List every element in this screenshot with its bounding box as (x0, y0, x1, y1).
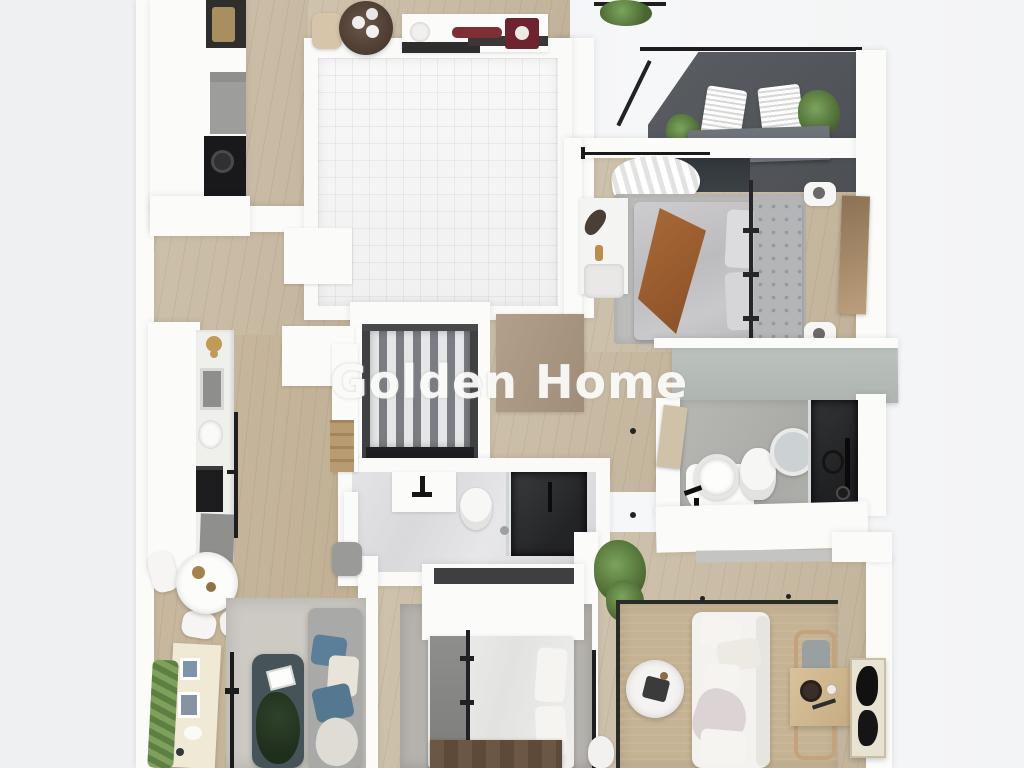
decor-sphere-2 (366, 8, 378, 20)
living-sofa-pillow-3 (703, 663, 741, 691)
shower1-fixture (548, 482, 552, 512)
floor-lamp-pole (230, 652, 234, 768)
bed1-pole-knob-3 (743, 316, 759, 321)
bed2-pole-knob-2 (460, 700, 474, 705)
shower2-column (845, 438, 850, 490)
decor-sphere-3 (366, 25, 379, 38)
bed1-pole-knob-1 (743, 228, 759, 233)
coffee-table-decor (660, 672, 668, 680)
balcony-plant-top (600, 0, 652, 26)
decor-sphere-1 (352, 16, 365, 29)
sideboard-frame-2 (178, 692, 200, 718)
vanity-stool (584, 264, 624, 298)
side-stool (312, 13, 342, 49)
shower2-head (836, 486, 850, 500)
bed2-foot-bench (430, 740, 562, 768)
bed1-canopy-pole (749, 180, 753, 348)
bathroom2-sink-bowl (694, 454, 740, 500)
bed1-pole-knob-2 (743, 272, 759, 277)
kitchen-drawers (210, 72, 246, 134)
living-door-handle-2 (786, 594, 791, 599)
bedroom2-wardrobe-slot (434, 568, 574, 584)
balcony-railing-left (616, 60, 651, 126)
bathroom1-glass-door (506, 472, 509, 556)
living-top-right-wall (832, 532, 892, 562)
curtain-rod (582, 152, 710, 155)
dining-cabinet-column (148, 322, 200, 574)
stair-rail-top (362, 324, 478, 331)
nightstand-top-lamp (813, 187, 825, 199)
counter-picture-frame (200, 368, 224, 410)
vanity-lamp (595, 245, 603, 261)
wall-art-blob-1 (856, 666, 878, 706)
desk-lamp-dot (826, 684, 837, 695)
living-door-handle-1 (700, 596, 705, 601)
watermark-text: Golden Home (330, 355, 688, 409)
bathroom2-top-edge (654, 338, 898, 348)
kitchen-island-block (284, 228, 352, 284)
wall-lamp-pole (234, 412, 238, 538)
floor-plan-render: Golden Home (0, 0, 1024, 768)
bed2-pole-knob-1 (460, 656, 474, 661)
dining-plate-2 (206, 582, 216, 592)
desk-bowl (800, 680, 822, 702)
cutting-board (212, 7, 235, 42)
curtain-rod-finial (581, 147, 585, 159)
bedroom1-top-wall (578, 138, 868, 158)
bathroom2-right-wall (856, 394, 886, 516)
desk-chair-white-seat (588, 736, 614, 768)
counter-vase (198, 420, 223, 449)
dining-plate-1 (192, 566, 205, 579)
kitchen-lower-cabinets (150, 196, 250, 236)
headboard-wood-panel (838, 196, 870, 315)
floor-lamp-knob (225, 688, 239, 694)
shower1-handle (500, 526, 509, 535)
hall-door-handle-1 (630, 428, 636, 434)
living-top-gray-strip (696, 549, 838, 562)
console-box-dot (515, 26, 529, 40)
bathroom1-toilet (460, 488, 492, 530)
living-sofa-pillow-4 (699, 728, 748, 766)
console-dish (410, 22, 430, 42)
towel-ring (822, 450, 844, 474)
hall-door-handle-2 (630, 512, 636, 518)
console-red-tray (452, 27, 502, 38)
sideboard-dot (176, 748, 184, 756)
teal-table-plant (256, 692, 300, 764)
hall-shelf-wood (330, 420, 354, 472)
living-sofa-back (756, 616, 770, 766)
sideboard-dish (184, 726, 202, 740)
bed1-headboard (754, 200, 802, 340)
balcony-railing-top (640, 47, 862, 51)
hall-stool-gray (332, 542, 362, 576)
bathroom1-faucet-h (412, 492, 432, 497)
coffee-machine (196, 466, 223, 512)
bed2-pillow-1 (534, 647, 568, 703)
brass-sconce (206, 336, 222, 352)
wall-lamp-arm (227, 470, 236, 474)
cooktop-pot (211, 150, 234, 173)
sideboard-frame-1 (180, 658, 200, 680)
